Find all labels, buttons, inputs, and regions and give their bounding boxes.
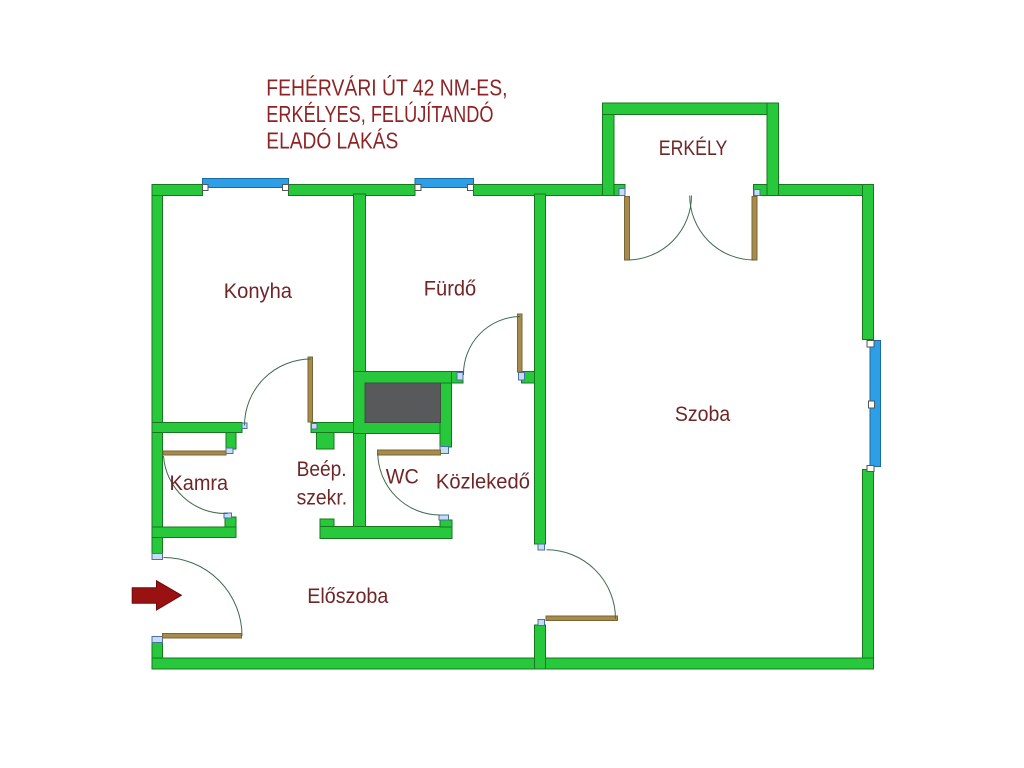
- svg-text:Beép.: Beép.: [297, 458, 347, 481]
- svg-text:Konyha: Konyha: [224, 280, 293, 303]
- svg-text:Előszoba: Előszoba: [307, 585, 388, 608]
- svg-text:szekr.: szekr.: [297, 487, 348, 510]
- svg-text:ERKÉLYES, FELÚJÍTANDÓ: ERKÉLYES, FELÚJÍTANDÓ: [266, 101, 493, 127]
- svg-text:FEHÉRVÁRI ÚT 42 NM-ES,: FEHÉRVÁRI ÚT 42 NM-ES,: [266, 75, 507, 101]
- svg-text:ELADÓ LAKÁS: ELADÓ LAKÁS: [266, 128, 398, 154]
- svg-text:Szoba: Szoba: [675, 403, 731, 426]
- svg-text:ERKÉLY: ERKÉLY: [659, 137, 728, 160]
- svg-text:Fürdő: Fürdő: [424, 278, 476, 301]
- svg-text:Kamra: Kamra: [170, 472, 229, 495]
- svg-text:Közlekedő: Közlekedő: [436, 471, 530, 494]
- svg-text:WC: WC: [386, 465, 419, 488]
